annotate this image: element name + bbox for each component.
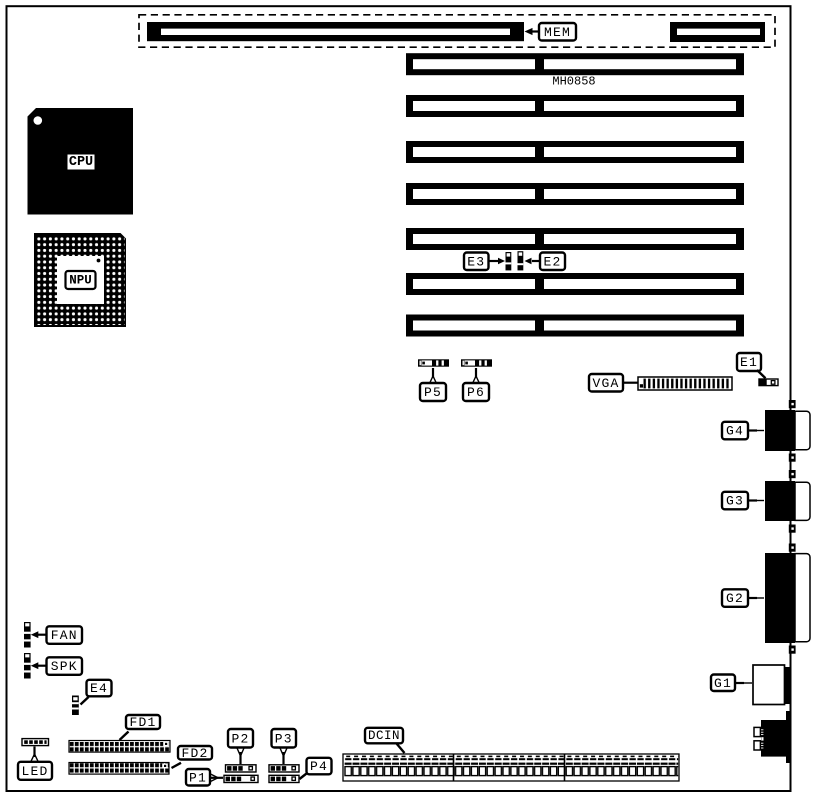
svg-text:NPU: NPU: [69, 274, 92, 288]
svg-text:G2: G2: [726, 591, 744, 606]
svg-text:E4: E4: [90, 681, 108, 696]
svg-text:DCIN: DCIN: [368, 729, 400, 743]
svg-text:P6: P6: [467, 385, 485, 400]
svg-text:SPK: SPK: [51, 659, 78, 674]
svg-text:G3: G3: [726, 494, 744, 509]
svg-text:MEM: MEM: [544, 25, 571, 40]
svg-text:P4: P4: [310, 759, 328, 774]
svg-text:P5: P5: [424, 385, 442, 400]
svg-text:FAN: FAN: [51, 628, 78, 643]
svg-text:MH0858: MH0858: [552, 75, 595, 89]
svg-text:E1: E1: [740, 355, 758, 370]
svg-text:G1: G1: [714, 676, 732, 691]
svg-text:LED: LED: [21, 764, 48, 779]
svg-text:P1: P1: [189, 770, 207, 785]
svg-text:P3: P3: [275, 731, 293, 746]
svg-text:CPU: CPU: [69, 155, 93, 170]
svg-text:P2: P2: [231, 731, 249, 746]
svg-text:FD2: FD2: [181, 746, 208, 761]
svg-text:E3: E3: [467, 254, 485, 269]
svg-text:G4: G4: [726, 424, 744, 439]
svg-text:E2: E2: [543, 254, 561, 269]
svg-text:FD1: FD1: [129, 715, 156, 730]
svg-text:VGA: VGA: [592, 376, 619, 391]
